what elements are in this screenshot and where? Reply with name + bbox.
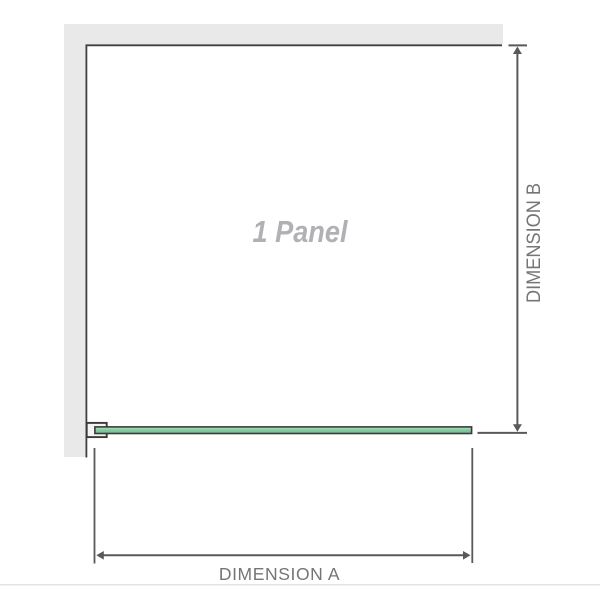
svg-text:DIMENSION B: DIMENSION B: [524, 183, 545, 303]
svg-text:1 Panel: 1 Panel: [253, 214, 349, 249]
svg-text:DIMENSION A: DIMENSION A: [219, 564, 340, 584]
